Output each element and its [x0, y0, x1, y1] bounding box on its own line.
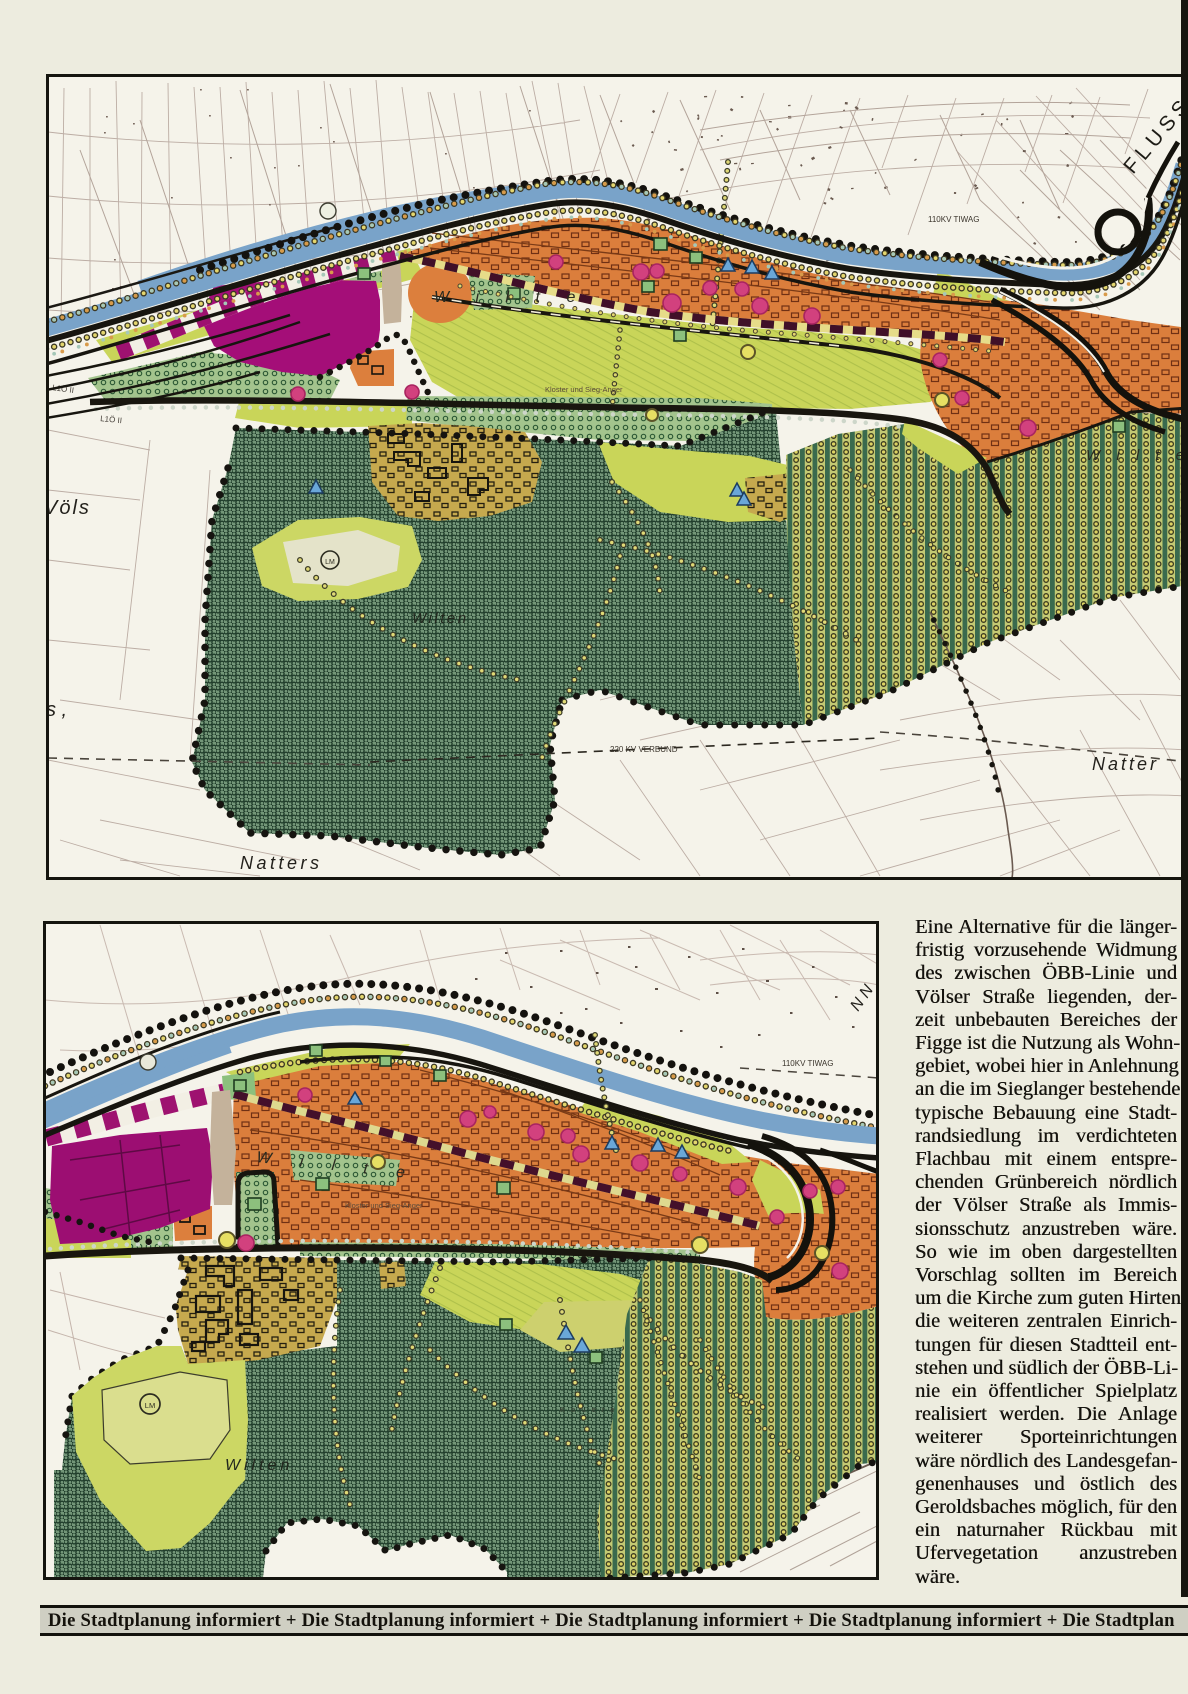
svg-text:W i l t e: W i l t e	[1086, 447, 1188, 464]
svg-text:LM: LM	[145, 1401, 155, 1410]
svg-text:Natter: Natter	[1092, 754, 1159, 774]
svg-text:110KV TIWAG: 110KV TIWAG	[782, 1059, 833, 1068]
svg-text:Wilten: Wilten	[412, 610, 469, 627]
svg-text:Natters: Natters	[240, 853, 323, 873]
svg-text:K o u e r e i: K o u e r e i	[560, 1405, 624, 1414]
svg-text:Kloster und Sieg-Anger: Kloster und Sieg-Anger	[345, 1201, 423, 1210]
svg-text:220 KV VERBUND: 220 KV VERBUND	[610, 745, 678, 754]
svg-text:LM: LM	[325, 559, 335, 566]
svg-text:Wilten: Wilten	[225, 1457, 293, 1474]
svg-text:110KV TIWAG: 110KV TIWAG	[928, 215, 979, 224]
svg-text:Völs: Völs	[46, 497, 91, 519]
svg-text:s ,: s ,	[46, 699, 67, 721]
svg-text:W i l t e: W i l t e	[434, 289, 586, 306]
svg-text:Kloster und Sieg-Anger: Kloster und Sieg-Anger	[545, 385, 623, 394]
